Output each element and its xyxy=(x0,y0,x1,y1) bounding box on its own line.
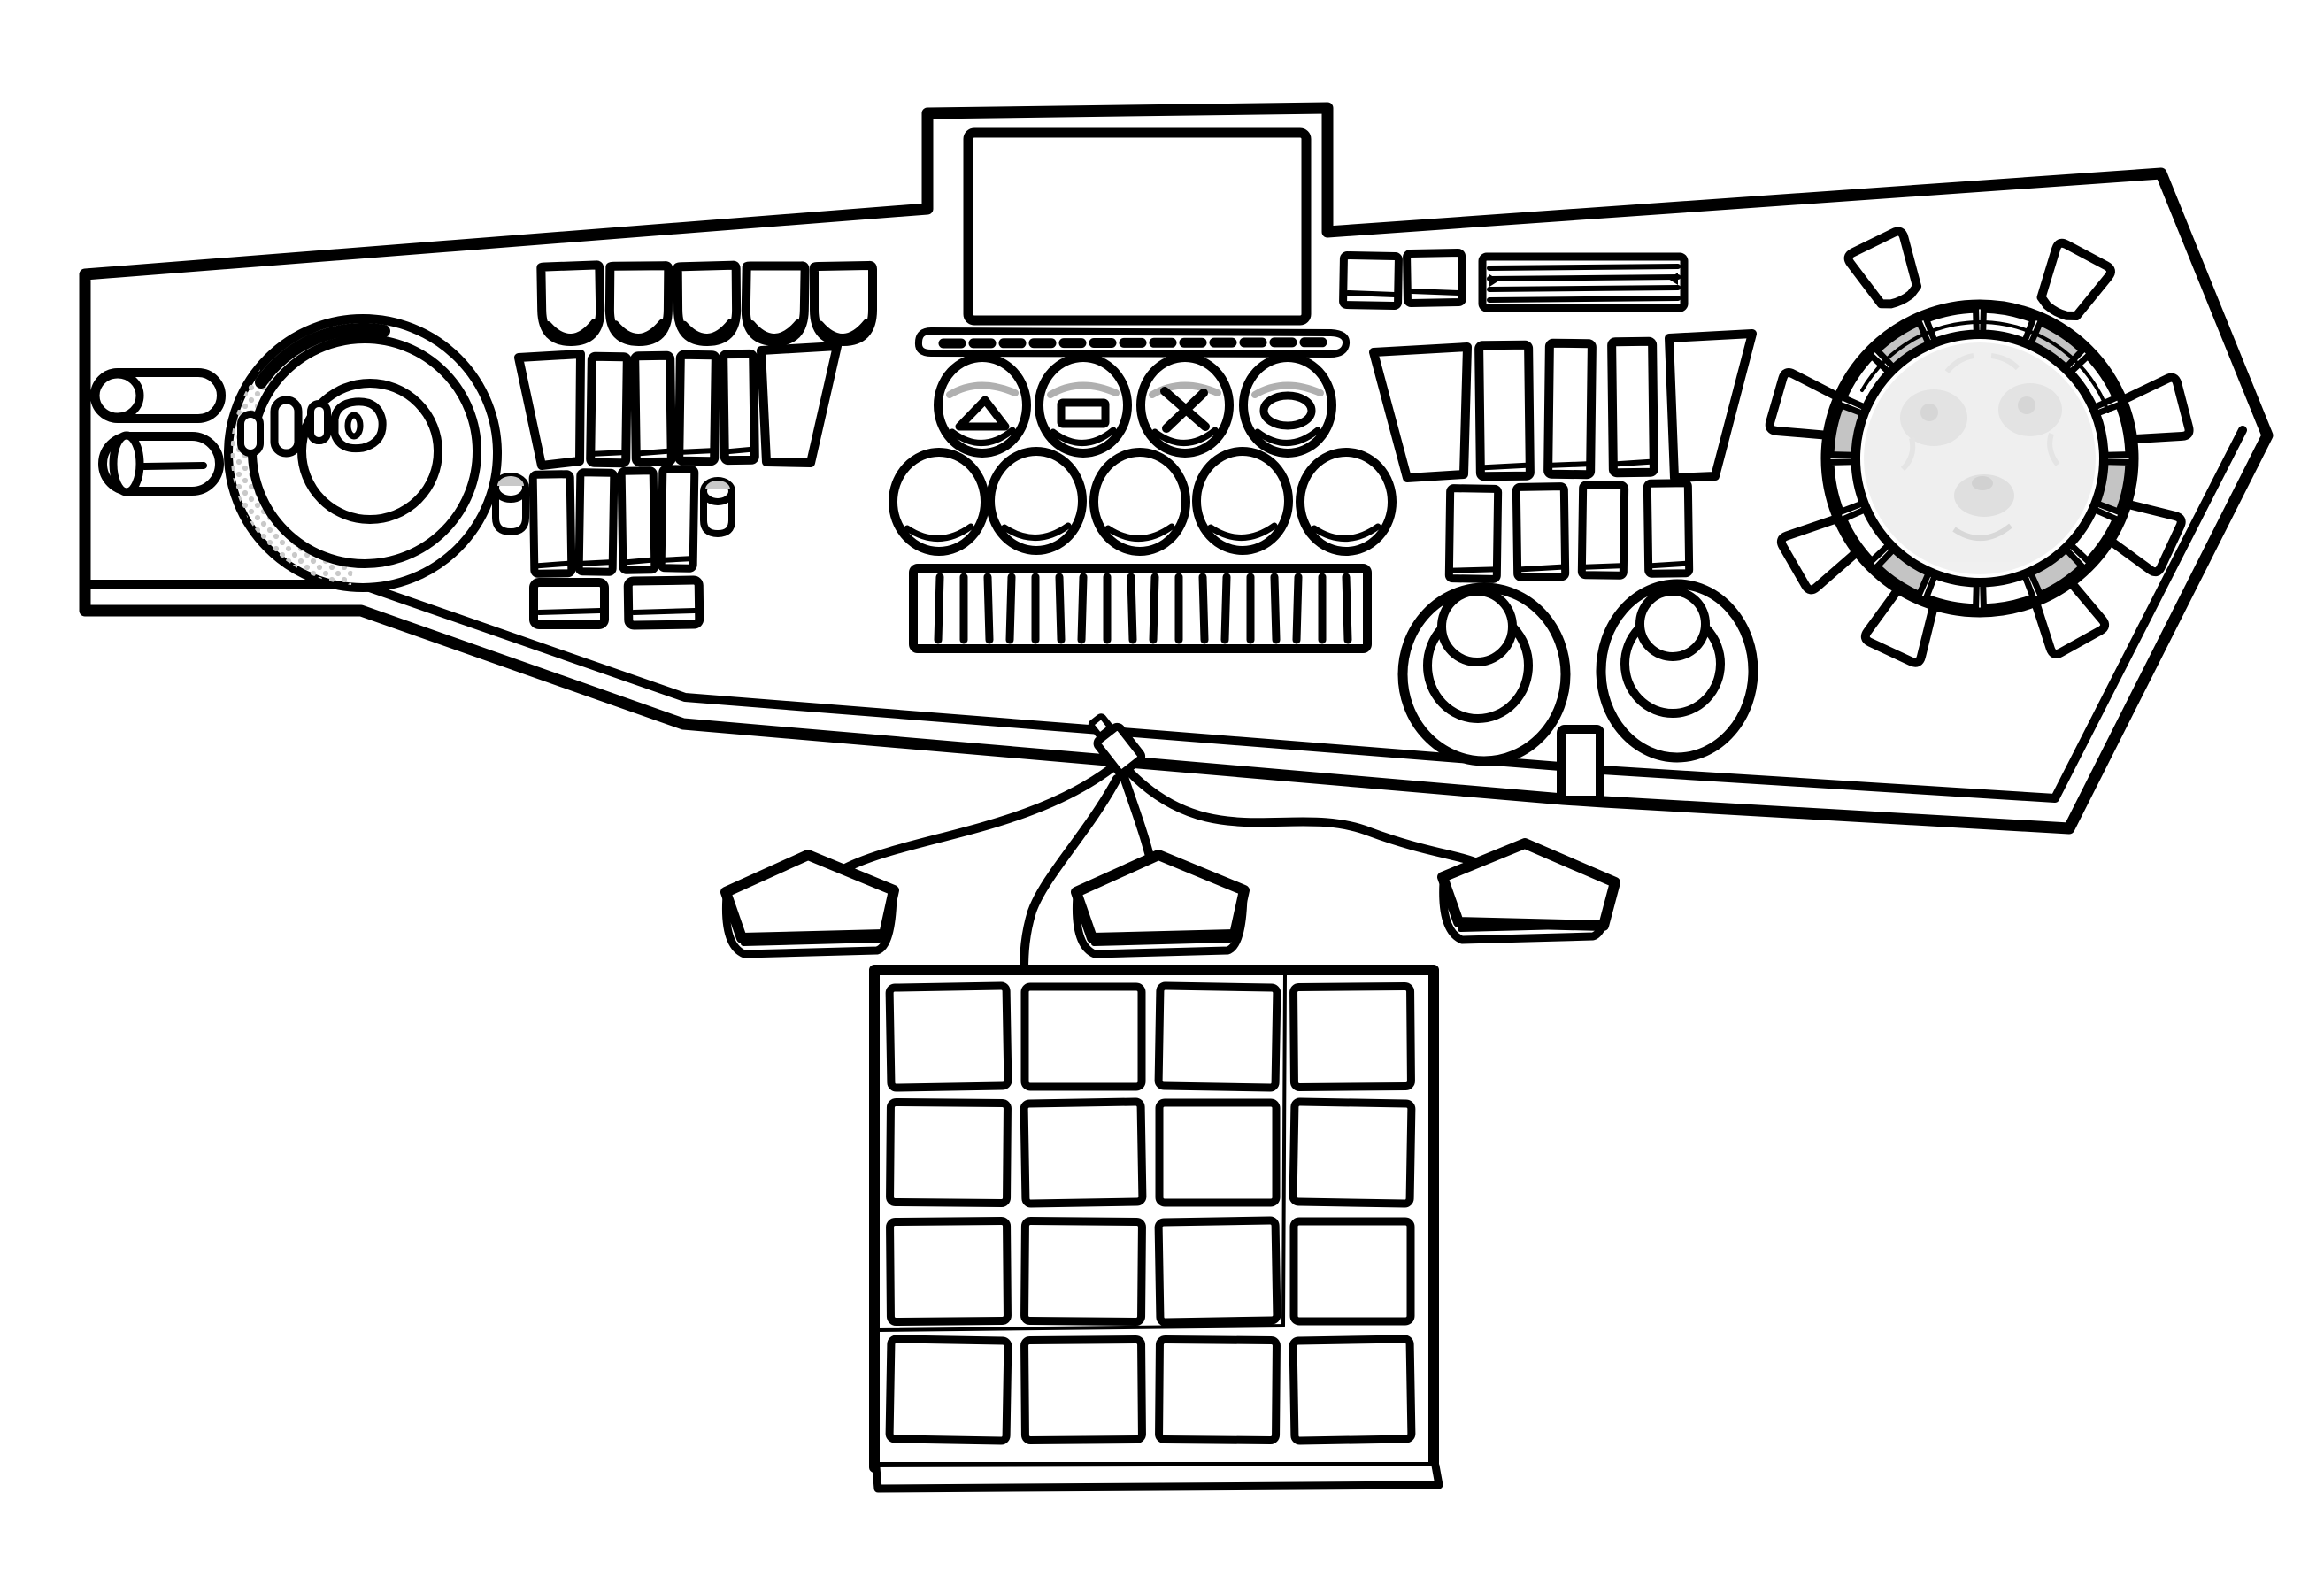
u-button[interactable] xyxy=(678,265,737,342)
rect-button[interactable] xyxy=(1647,483,1689,574)
end-knob[interactable] xyxy=(496,476,526,532)
trackball-center-dot xyxy=(348,415,360,436)
foot-pedal-2[interactable] xyxy=(1076,855,1244,954)
u-button[interactable] xyxy=(610,265,669,342)
rect-button[interactable] xyxy=(1548,343,1592,475)
strip-bar xyxy=(1010,577,1012,640)
trackball[interactable] xyxy=(228,319,497,588)
keypad-key-r2c3[interactable] xyxy=(1159,1103,1276,1203)
u-button[interactable] xyxy=(814,265,873,342)
square-button[interactable] xyxy=(1407,252,1463,303)
u-button[interactable] xyxy=(745,265,804,342)
keypad-key-r2c4[interactable] xyxy=(1293,1102,1412,1204)
wide-button[interactable] xyxy=(534,582,604,625)
keypad-key-r4c1[interactable] xyxy=(889,1339,1008,1441)
left-row2 xyxy=(519,346,837,466)
console-sketch xyxy=(0,0,2324,1593)
keypad-key-r3c4[interactable] xyxy=(1294,1221,1411,1321)
symbol-button-triangle[interactable] xyxy=(938,358,1027,453)
side-lever-top[interactable] xyxy=(95,373,221,419)
strip-bar xyxy=(1225,577,1227,640)
keypad-key-r3c2[interactable] xyxy=(1025,1220,1143,1321)
keypad-skirt xyxy=(876,1466,1439,1489)
rect-button[interactable] xyxy=(679,355,716,462)
strip-bar xyxy=(1153,577,1155,640)
strip-bar xyxy=(1297,577,1298,640)
keypad-key-r1c2[interactable] xyxy=(1025,987,1142,1087)
front-edge-tab xyxy=(1561,729,1600,800)
display-screen xyxy=(968,133,1306,320)
faint-animal-face xyxy=(1864,342,2096,574)
right-rowA xyxy=(1374,334,1752,478)
keypad xyxy=(874,970,1439,1489)
keypad-key-r1c4[interactable] xyxy=(1294,986,1412,1087)
keypad-key-r4c2[interactable] xyxy=(1025,1339,1143,1440)
rect-button[interactable] xyxy=(661,469,695,569)
rect-button[interactable] xyxy=(723,354,755,460)
end-knob[interactable] xyxy=(704,481,732,534)
dash-strip[interactable] xyxy=(919,331,1346,354)
rect-button[interactable] xyxy=(579,473,614,573)
left-row3 xyxy=(496,469,732,574)
round-button[interactable] xyxy=(990,451,1082,550)
rect-button[interactable] xyxy=(635,356,672,463)
rect-button[interactable] xyxy=(1479,345,1530,477)
strip-bar xyxy=(1081,577,1083,640)
rect-button[interactable] xyxy=(1612,342,1654,473)
foot-pedal-1[interactable] xyxy=(726,855,894,954)
strip-bar xyxy=(1346,577,1348,640)
u-button-row xyxy=(541,265,873,342)
keypad-key-r1c3[interactable] xyxy=(1158,986,1277,1088)
striped-strip[interactable] xyxy=(913,568,1367,649)
rect-button[interactable] xyxy=(590,357,627,464)
strip-bar xyxy=(988,577,989,640)
round-button[interactable] xyxy=(1197,451,1289,550)
speaker-grille xyxy=(1482,257,1684,308)
u-button[interactable] xyxy=(541,265,600,342)
joystick-left[interactable] xyxy=(1403,588,1566,761)
sketch-stage xyxy=(0,0,2324,1593)
joystick-right[interactable] xyxy=(1601,584,1753,758)
strip-bar xyxy=(1131,577,1133,640)
wide-button[interactable] xyxy=(628,580,700,625)
keypad-key-r2c1[interactable] xyxy=(890,1102,1008,1203)
keypad-key-r3c3[interactable] xyxy=(1158,1220,1277,1322)
round-button-row xyxy=(893,451,1392,551)
keypad-key-r4c3[interactable] xyxy=(1159,1339,1277,1440)
strip-bar xyxy=(1274,577,1276,640)
square-button[interactable] xyxy=(1343,255,1399,305)
symbol-button-minus[interactable] xyxy=(1039,358,1127,453)
rect-button[interactable] xyxy=(1516,487,1565,578)
rect-button[interactable] xyxy=(1449,489,1497,580)
round-button[interactable] xyxy=(1300,452,1392,551)
keypad-key-r3c1[interactable] xyxy=(890,1220,1008,1321)
keypad-key-r4c4[interactable] xyxy=(1293,1339,1412,1441)
rect-button[interactable] xyxy=(1581,485,1624,576)
strip-bar xyxy=(1059,577,1061,640)
rect-button[interactable] xyxy=(621,471,655,571)
strip-bar xyxy=(1203,577,1204,640)
keypad-key-r1c1[interactable] xyxy=(889,986,1008,1088)
rect-button[interactable] xyxy=(533,474,572,574)
cable-to-pedal-1 xyxy=(822,768,1112,886)
keypad-key-r2c2[interactable] xyxy=(1024,1102,1143,1204)
side-lever-bottom[interactable] xyxy=(103,435,219,492)
symbol-button-cross[interactable] xyxy=(1141,358,1229,453)
round-button[interactable] xyxy=(1094,452,1186,551)
strip-bar xyxy=(938,577,940,640)
round-button[interactable] xyxy=(893,452,985,551)
symbol-button-oval[interactable] xyxy=(1243,358,1332,453)
